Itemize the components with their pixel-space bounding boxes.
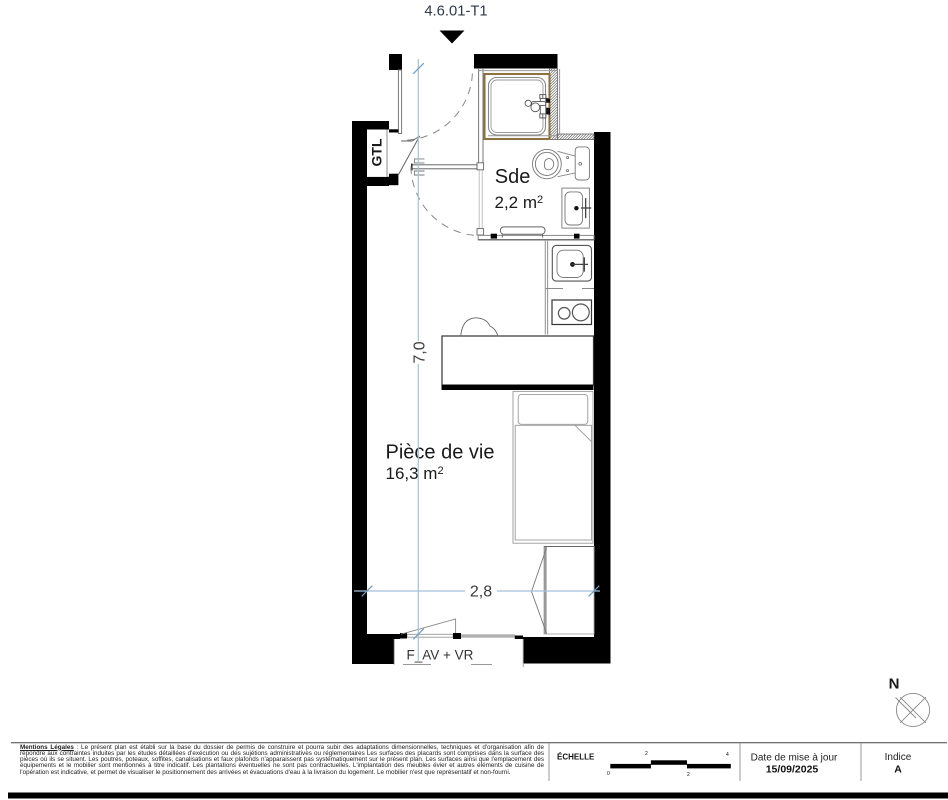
svg-text:15/09/2025: 15/09/2025 bbox=[766, 764, 819, 776]
svg-text:2,2 m2: 2,2 m2 bbox=[495, 193, 544, 212]
svg-text:N: N bbox=[889, 676, 900, 693]
svg-text:Indice: Indice bbox=[885, 752, 912, 763]
svg-text:0: 0 bbox=[607, 771, 610, 777]
svg-text:Date de mise à jour: Date de mise à jour bbox=[751, 753, 838, 764]
svg-text:F_AV + VR: F_AV + VR bbox=[407, 648, 474, 663]
svg-text:ÉCHELLE: ÉCHELLE bbox=[557, 753, 595, 762]
svg-text:Pièce de vie: Pièce de vie bbox=[386, 442, 495, 464]
svg-text:GTL: GTL bbox=[369, 138, 385, 166]
svg-text:2: 2 bbox=[687, 772, 690, 778]
svg-text:A: A bbox=[894, 764, 902, 776]
svg-text:2,8: 2,8 bbox=[470, 584, 492, 601]
svg-text:2: 2 bbox=[645, 751, 648, 757]
svg-text:Sde: Sde bbox=[495, 166, 531, 188]
svg-text:7,0: 7,0 bbox=[411, 341, 428, 363]
svg-text:16,3 m2: 16,3 m2 bbox=[386, 464, 444, 483]
svg-text:4: 4 bbox=[726, 752, 729, 758]
svg-text:4.6.01-T1: 4.6.01-T1 bbox=[424, 4, 487, 20]
